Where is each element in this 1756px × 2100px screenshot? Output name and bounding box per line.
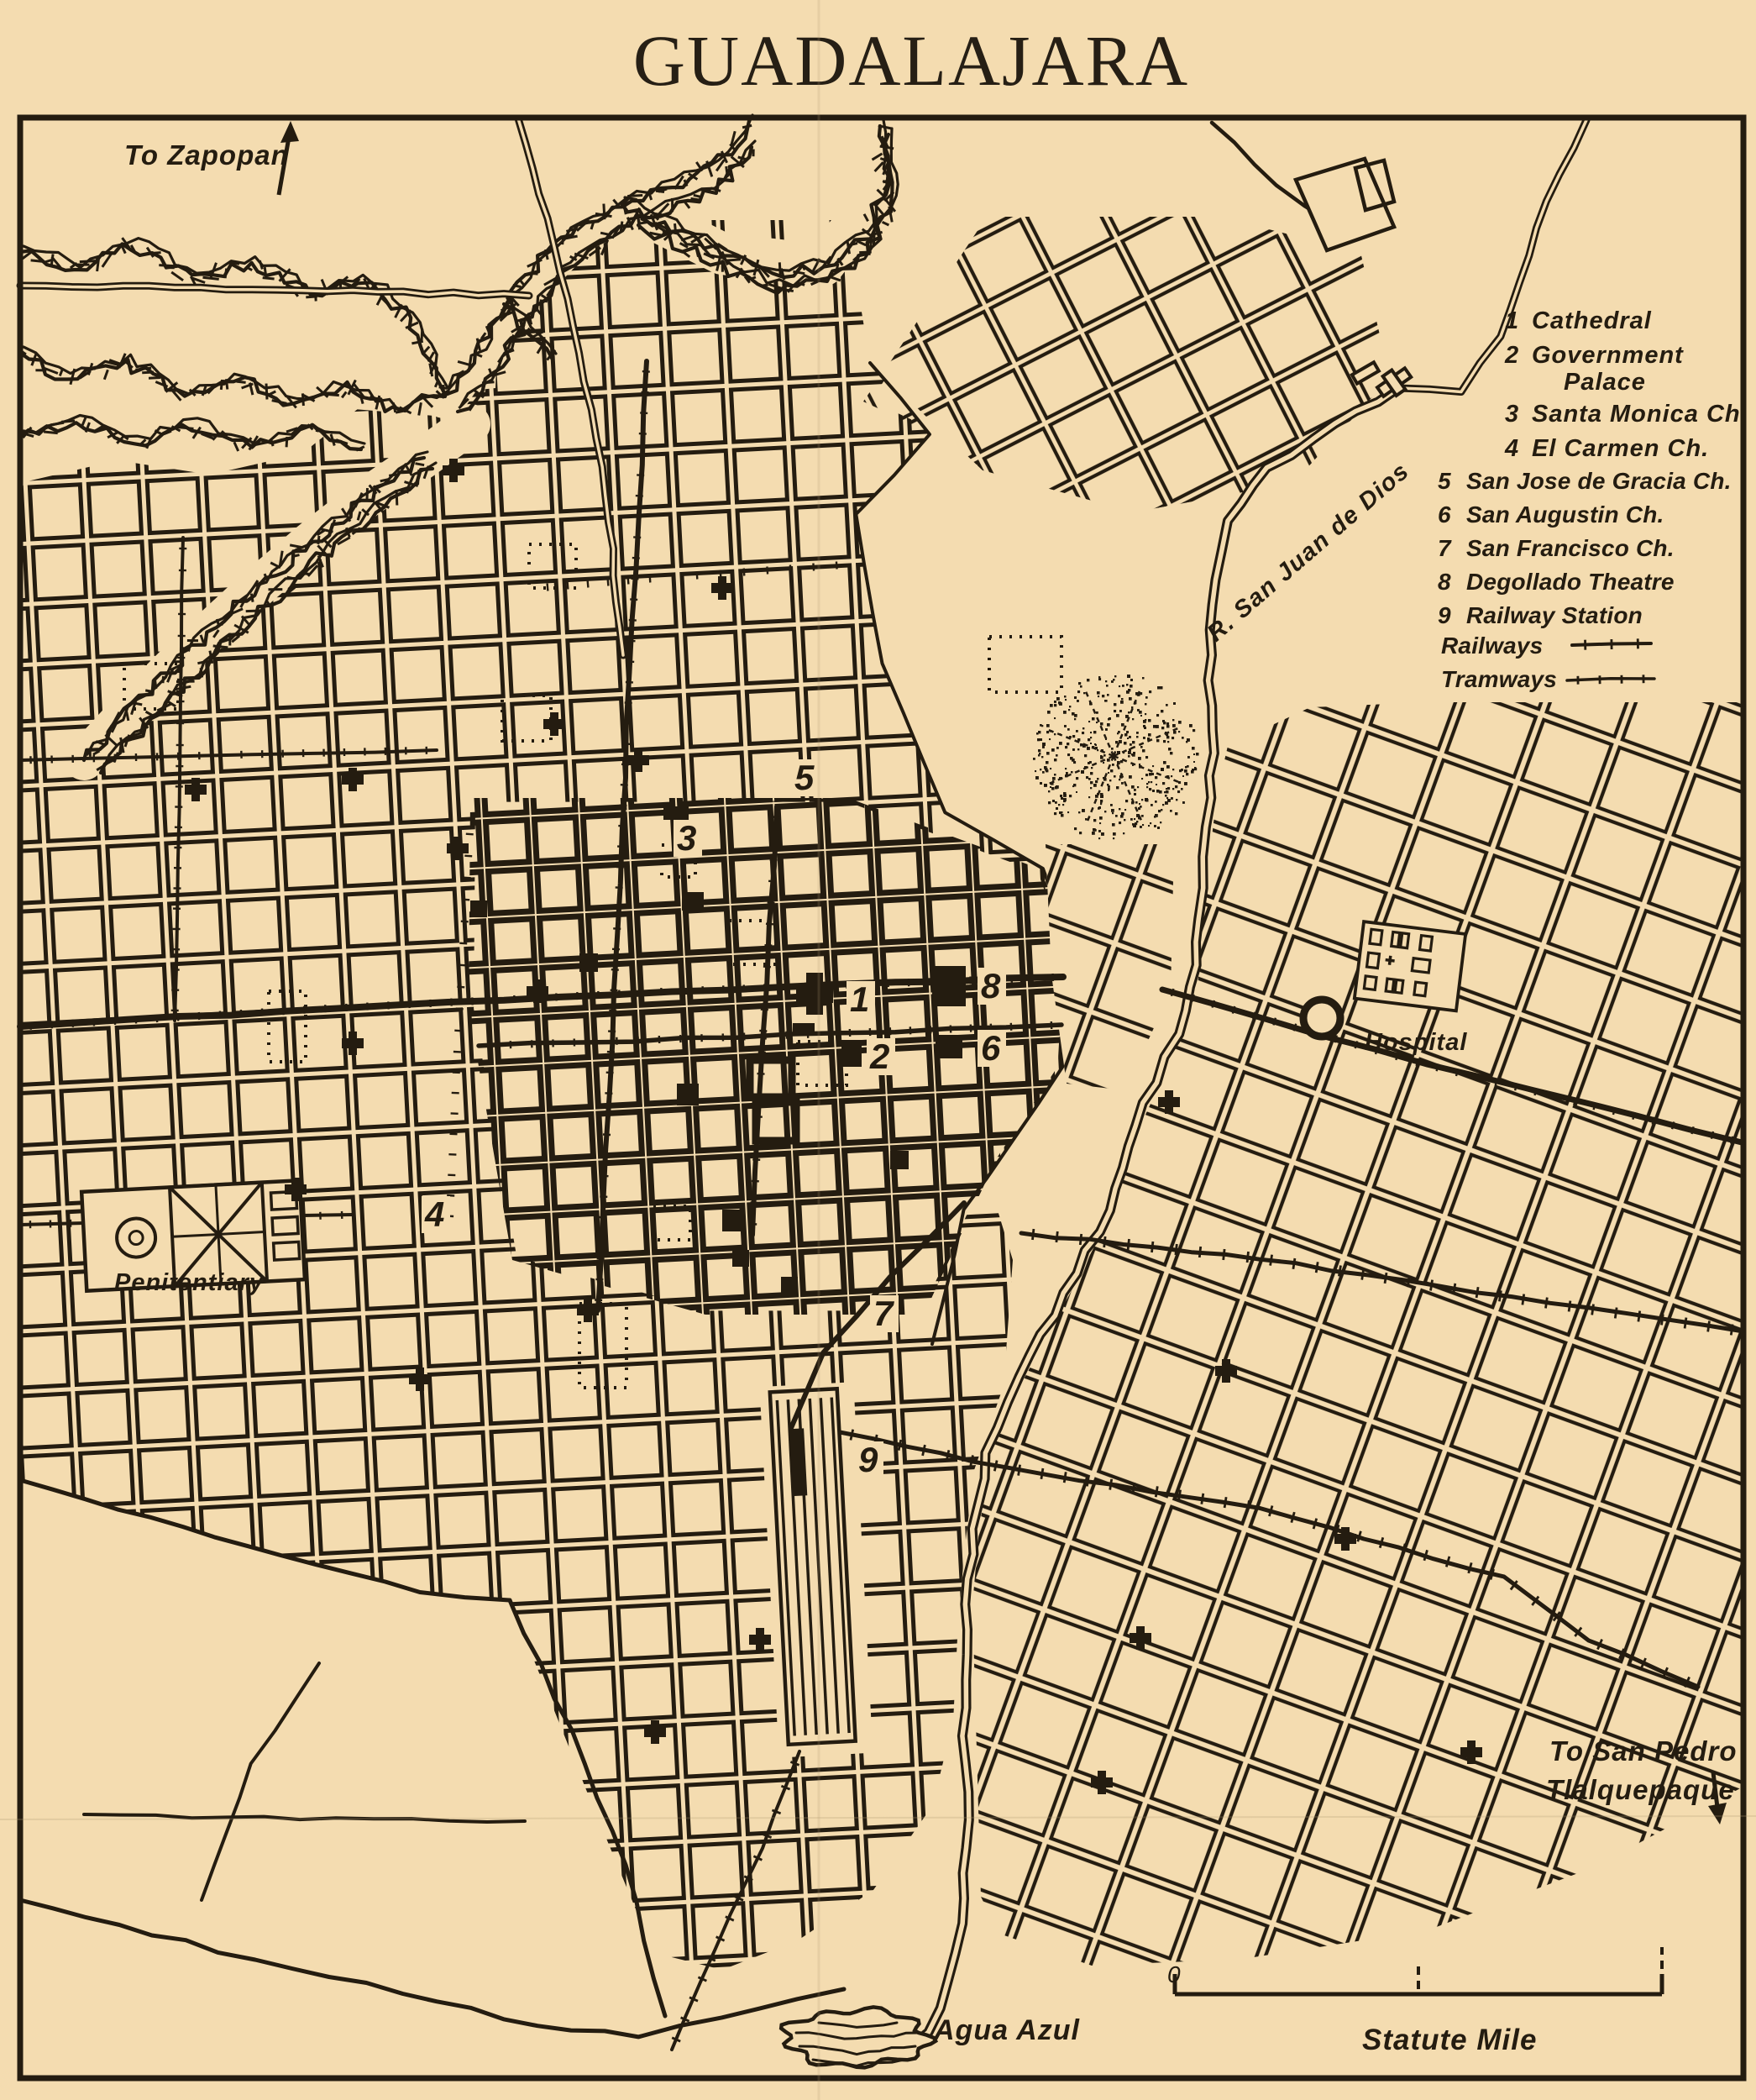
- svg-text:2: 2: [869, 1037, 889, 1076]
- svg-text:Agua Azul: Agua Azul: [933, 2014, 1081, 2046]
- svg-text:Railway Station: Railway Station: [1466, 602, 1643, 628]
- svg-text:8: 8: [1438, 569, 1451, 595]
- svg-text:5: 5: [1438, 468, 1451, 494]
- svg-text:Tlalquepaque: Tlalquepaque: [1546, 1774, 1735, 1805]
- svg-text:El Carmen Ch.: El Carmen Ch.: [1532, 435, 1709, 462]
- svg-text:Tramways: Tramways: [1441, 666, 1557, 692]
- svg-text:4: 4: [424, 1194, 444, 1234]
- svg-text:0: 0: [1167, 1961, 1181, 1987]
- svg-text:1: 1: [850, 979, 869, 1019]
- svg-text:5: 5: [794, 758, 815, 797]
- svg-text:GUADALAJARA: GUADALAJARA: [633, 20, 1189, 101]
- svg-text:7: 7: [1438, 535, 1452, 561]
- svg-text:4: 4: [1504, 435, 1519, 462]
- svg-text:Cathedral: Cathedral: [1532, 307, 1652, 334]
- svg-text:San Jose de Gracia Ch.: San Jose de Gracia Ch.: [1466, 468, 1732, 494]
- svg-text:San Francisco Ch.: San Francisco Ch.: [1466, 535, 1675, 561]
- svg-text:6: 6: [1438, 501, 1451, 528]
- svg-text:Hospital: Hospital: [1365, 1029, 1467, 1056]
- svg-text:3: 3: [677, 818, 696, 858]
- svg-text:6: 6: [981, 1028, 1001, 1068]
- svg-text:7: 7: [873, 1294, 894, 1333]
- svg-text:9: 9: [1438, 602, 1451, 628]
- svg-text:9: 9: [858, 1440, 878, 1479]
- svg-text:Government: Government: [1532, 342, 1684, 369]
- svg-text:Penitentiary: Penitentiary: [114, 1269, 265, 1296]
- svg-text:8: 8: [981, 966, 1001, 1005]
- svg-text:Santa Monica Ch.: Santa Monica Ch.: [1532, 401, 1748, 428]
- svg-text:Statute Mile: Statute Mile: [1362, 2024, 1537, 2056]
- svg-text:Railways: Railways: [1441, 633, 1543, 659]
- svg-text:San Augustin Ch.: San Augustin Ch.: [1466, 501, 1664, 528]
- svg-text:3: 3: [1505, 401, 1519, 428]
- svg-text:Degollado Theatre: Degollado Theatre: [1466, 569, 1675, 595]
- svg-text:2: 2: [1504, 342, 1519, 369]
- svg-text:1: 1: [1505, 307, 1519, 334]
- svg-text:To San Pedro: To San Pedro: [1549, 1735, 1737, 1767]
- svg-text:Palace: Palace: [1564, 369, 1646, 396]
- svg-text:To Zapopan: To Zapopan: [124, 139, 289, 171]
